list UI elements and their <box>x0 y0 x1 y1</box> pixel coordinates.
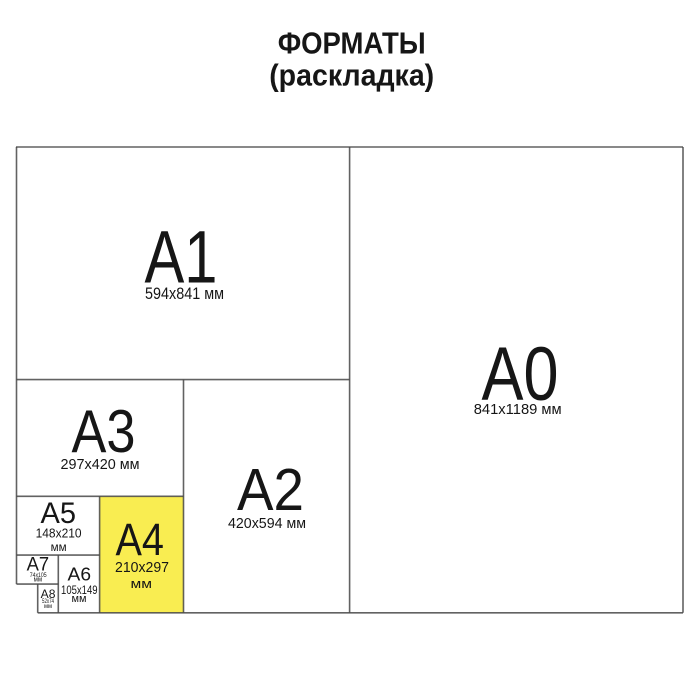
svg-text:841x1189 мм: 841x1189 мм <box>474 401 562 418</box>
svg-text:A2: A2 <box>237 457 304 523</box>
svg-text:210x297: 210x297 <box>115 560 169 576</box>
svg-text:мм: мм <box>131 576 153 591</box>
svg-text:A6: A6 <box>68 565 92 585</box>
svg-text:420x594 мм: 420x594 мм <box>228 516 306 532</box>
svg-text:148x210: 148x210 <box>36 525 82 540</box>
svg-text:297x420 мм: 297x420 мм <box>61 457 140 473</box>
svg-text:A4: A4 <box>115 514 164 565</box>
svg-text:594x841 мм: 594x841 мм <box>145 285 224 303</box>
svg-text:A3: A3 <box>72 398 136 465</box>
svg-text:мм: мм <box>72 593 87 605</box>
svg-text:мм: мм <box>51 540 67 554</box>
svg-text:ФОРМАТЫ: ФОРМАТЫ <box>278 26 426 61</box>
svg-text:мм: мм <box>34 577 43 584</box>
svg-text:мм: мм <box>44 603 52 610</box>
svg-text:(раскладка): (раскладка) <box>269 57 434 92</box>
